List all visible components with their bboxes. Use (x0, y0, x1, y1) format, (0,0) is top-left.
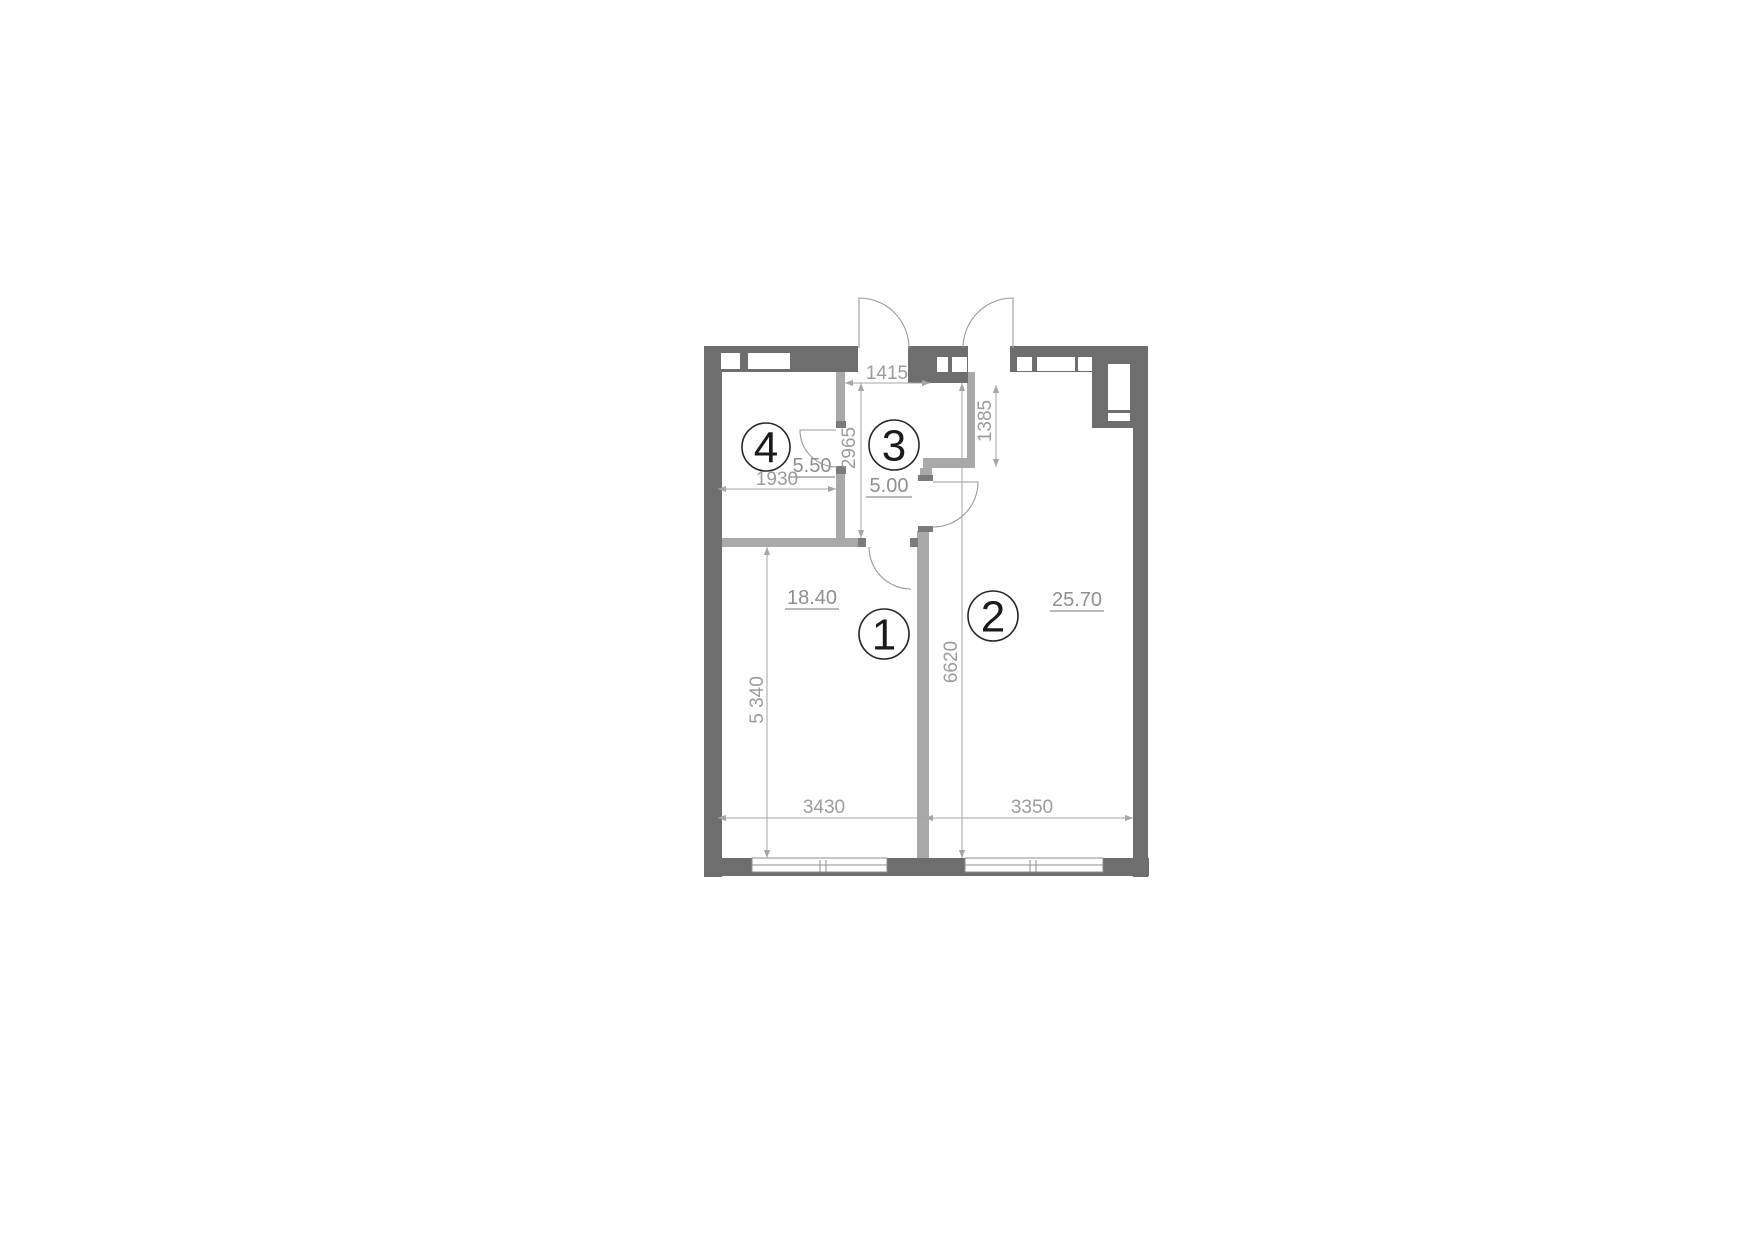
dim-label-2965: 2965 (839, 427, 860, 469)
dim-label-5340: 5 340 (747, 676, 768, 724)
wall-hall-step (923, 458, 975, 468)
wall-room4-hall-lower (836, 473, 845, 538)
room-2-number: 2 (981, 592, 1005, 641)
vent-opening (1037, 357, 1075, 371)
area-labels: 18.40 25.70 5.00 5.50 (785, 455, 1104, 611)
jamb (858, 538, 866, 547)
wall-room4-hall-upper (836, 372, 845, 422)
dim-label-6620: 6620 (941, 641, 962, 683)
vent-opening (1078, 357, 1092, 371)
floor-plan-page: 1415 1930 2965 1385 6620 5 340 3430 3350… (0, 0, 1754, 1240)
room-4-number: 4 (754, 423, 778, 472)
dim-label-1385: 1385 (975, 400, 996, 442)
door-room2-swing (933, 482, 978, 527)
room-3-number: 3 (882, 421, 906, 470)
wall-room4-room1 (722, 538, 859, 547)
shaft-opening (1108, 413, 1130, 421)
jamb (918, 526, 933, 532)
dim-label-1415: 1415 (866, 363, 908, 384)
room-1-number: 1 (872, 610, 896, 659)
door-room1-swing (869, 547, 911, 589)
wall-hall-stub (920, 468, 932, 476)
vent-opening (1017, 357, 1032, 371)
vent-opening (721, 353, 740, 369)
vent-opening (952, 357, 967, 372)
wall-room1-room2 (917, 531, 929, 858)
room-1-area: 18.40 (787, 587, 837, 609)
vent-opening (748, 353, 790, 369)
jamb (918, 475, 933, 481)
entry-door-left-swing (859, 298, 909, 348)
room-3-area: 5.00 (870, 475, 909, 497)
entry-door-right-swing (963, 298, 1013, 348)
floor-plan-canvas: 1415 1930 2965 1385 6620 5 340 3430 3350… (0, 0, 1754, 1240)
room-4-area: 5.50 (793, 455, 832, 477)
jamb (910, 538, 918, 547)
vent-opening (937, 357, 948, 372)
wall-right (1133, 428, 1148, 877)
dim-label-3350: 3350 (1011, 797, 1053, 818)
wall-hall-right (967, 372, 975, 458)
room-2-area: 25.70 (1052, 589, 1102, 611)
dim-label-3430: 3430 (803, 797, 845, 818)
shaft-opening (1108, 364, 1130, 410)
wall-left (704, 346, 722, 877)
